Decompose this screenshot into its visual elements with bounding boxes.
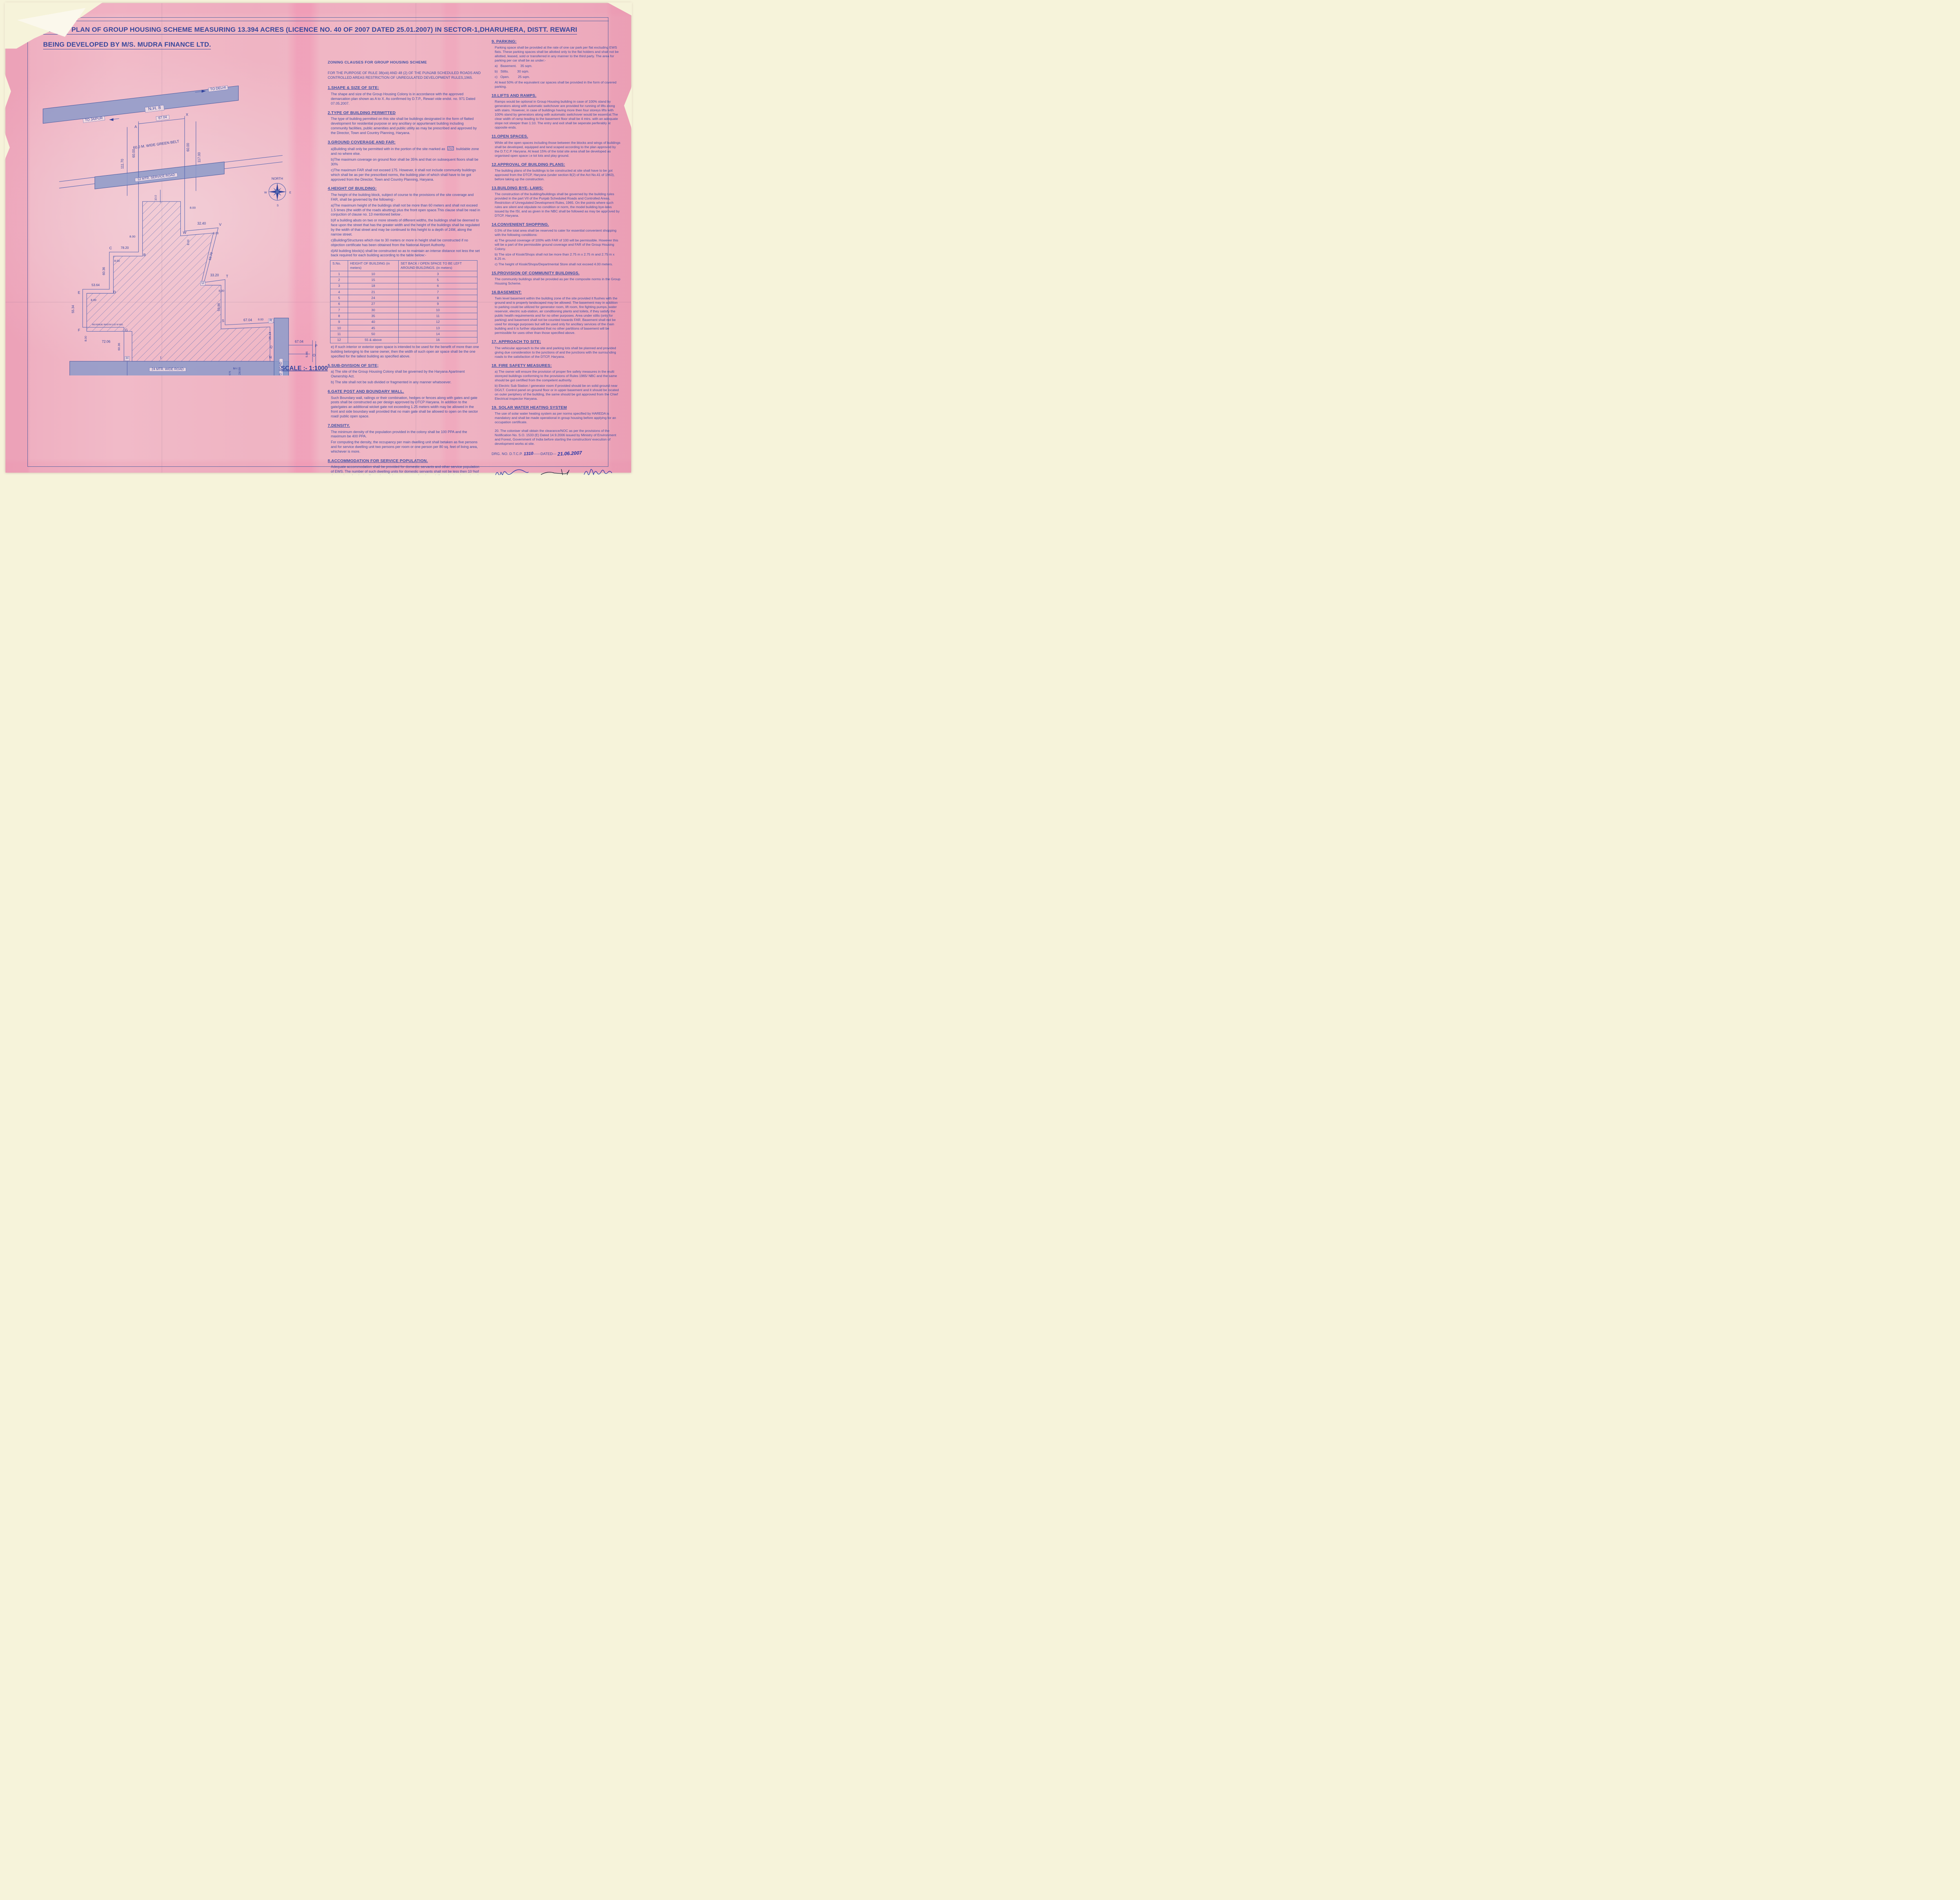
plan-label: O: [313, 353, 316, 357]
clause-text: Ramps would be optional in Group Housing…: [492, 100, 621, 130]
clause-text: a)The maximum height of the buildings sh…: [328, 203, 481, 218]
buildable-hatch-swatch: [447, 146, 454, 150]
drg-number-handwritten: 1310: [523, 451, 533, 457]
setback-table-row: 104513: [330, 325, 477, 331]
plan-label: 8.00: [213, 232, 218, 235]
setback-table-cell: 24: [348, 295, 399, 301]
plan-label: P: [315, 344, 317, 348]
clauses-sections-right: 9. PARKING:Parking space shall be provid…: [492, 39, 621, 446]
plan-label: 63.70: [208, 252, 214, 261]
site-plan-drawing: N.H. 867.04TO JAIPURTO DELHIAX60.0 M. WI…: [29, 62, 341, 375]
clause-section: 9. PARKING:Parking space shall be provid…: [492, 39, 621, 89]
setback-table-cell: 18: [348, 283, 399, 289]
setback-table-cell: 11: [399, 313, 477, 319]
clause-text: a) The ground coverage of 100% with FAR …: [492, 238, 621, 251]
plan-label: 8.00: [219, 289, 224, 292]
signature-row: (V.K. GOYAL) DTP(HQ) (DHARE SINGH) CTP(H…: [492, 467, 621, 475]
edge-nick-left: [5, 132, 10, 160]
setback-table-cell: 15: [348, 277, 399, 283]
setback-table-cell: 3: [399, 271, 477, 277]
clause-heading: 17. APPROACH TO SITE;: [492, 340, 541, 344]
drawing-title-line1: ZONING PLAN OF GROUP HOUSING SCHEME MEAS…: [43, 26, 577, 34]
signature-dhare-singh: (DHARE SINGH) CTP(HR): [539, 467, 572, 475]
drawing-title-text: ZONING PLAN OF GROUP HOUSING SCHEME MEAS…: [43, 26, 577, 34]
setback-table-cell: 7: [399, 289, 477, 295]
plan-label: F: [78, 328, 80, 332]
drg-prefix: DRG. NO. D.T.C.P.: [492, 451, 523, 456]
clause-section: 1.SHAPE & SIZE OF SITE:The shape and siz…: [328, 85, 481, 106]
scanned-zoning-plan-page: ZONING PLAN OF GROUP HOUSING SCHEME MEAS…: [0, 0, 634, 475]
plan-label: C: [109, 246, 112, 250]
clause-text: c) Open. 25 sqm.: [492, 75, 621, 79]
plan-label: 111.70: [120, 159, 124, 169]
drawing-number-line: DRG. NO. D.T.C.P. 1310------DATED--- 21.…: [492, 450, 621, 457]
plan-label: 8.00: [114, 259, 120, 263]
signature-scribble: [539, 467, 572, 475]
setback-table-cell: 35: [348, 313, 399, 319]
clause-text: The building plans of the buildings to b…: [492, 169, 621, 181]
plan-label: 8.00: [186, 239, 190, 245]
plan-label: N: [269, 355, 272, 359]
setback-table-cell: 40: [348, 319, 399, 325]
setback-table-header: S.No.: [330, 261, 348, 271]
clause-section: 17. APPROACH TO SITE;The vehicular appro…: [492, 339, 621, 359]
plan-label: E: [289, 190, 291, 194]
clause-text: The community buildings shall be provide…: [492, 277, 621, 286]
plan-label: E: [78, 290, 80, 294]
clause-text: e) If such interior or exterior open spa…: [328, 345, 481, 359]
setback-table-header: SET BACK / OPEN SPACE TO BE LEFT AROUND …: [399, 261, 477, 271]
plan-label: 60.00: [132, 149, 136, 158]
developer-title-text: BEING DEVELOPED BY M/S. MUDRA FINANCE LT…: [43, 41, 211, 49]
setback-table-cell: 50: [348, 331, 399, 337]
clause-section: 18. FIRE SAFETY MEASURES:a) The owner wi…: [492, 363, 621, 401]
setback-table-row: 2155: [330, 277, 477, 283]
setback-table-row: 94012: [330, 319, 477, 325]
plan-label: S: [277, 204, 279, 207]
corner-cut-top-right: [597, 2, 632, 16]
clause-text: a)Building shall only be permitted with …: [328, 146, 481, 156]
clause-section: 5.SUB-DIVISION OF SITE;a) The site of th…: [328, 363, 481, 385]
setback-table-row: 73010: [330, 307, 477, 313]
clause-text: The type of building permitted on this s…: [328, 117, 481, 136]
plan-label: D: [113, 290, 116, 294]
zoning-clauses-column: ZONING CLAUSES FOR GROUP HOUSING SCHEME …: [328, 60, 481, 475]
plan-label: 60.0 M. WIDE GREEN BELT: [133, 139, 180, 149]
setback-table-cell: 5: [399, 277, 477, 283]
signature-scribble: [494, 467, 530, 475]
clause-heading: 3.GROUND COVERAGE AND FAR:: [328, 140, 396, 145]
clause-section: 14.CONVENIENT SHOPPING.0.5% of the total…: [492, 222, 621, 267]
clause-heading: 7.DENSITY.: [328, 424, 350, 428]
clause-section: 6.GATE POST AND BOUNDARY WALL.Such Bound…: [328, 389, 481, 419]
setback-table-cell: 45: [348, 325, 399, 331]
plan-label: Q: [270, 345, 273, 349]
setback-table-cell: 14: [399, 331, 477, 337]
clause-text: At least 50% of the equivalent car space…: [492, 80, 621, 89]
clause-heading: 1.SHAPE & SIZE OF SITE:: [328, 86, 379, 90]
setback-table-row: 5248: [330, 295, 477, 301]
clause-section: 2.TYPE OF BUILDING PERMITTEDThe type of …: [328, 111, 481, 136]
setback-table-row: 83511: [330, 313, 477, 319]
clause-text: The shape and size of the Group Housing …: [328, 92, 481, 106]
clause-text: a) Basement. 35 sqm.: [492, 64, 621, 68]
clause-text: 20. The coloniser shall obtain the clear…: [492, 429, 621, 446]
drg-dated-label: DATED: [541, 451, 553, 456]
plan-scale-label: SCALE :- 1:1000: [281, 365, 328, 372]
clause-heading: 12.APPROVAL OF BUILDING PLANS:: [492, 163, 565, 167]
plan-label: B: [143, 253, 146, 257]
plan-label: W: [183, 231, 187, 235]
clause-text: The minimum density of the population pr…: [328, 430, 481, 439]
clause-text: The use of solar water heating system as…: [492, 412, 621, 424]
drg-date-handwritten: 21.06.2007: [557, 450, 582, 457]
clause-text: The height of the building block, subjec…: [328, 193, 481, 202]
clause-section: 11.OPEN SPACES.While all the open spaces…: [492, 134, 621, 158]
clause-heading: 13.BUILDING BYE- LAWS:: [492, 186, 543, 190]
plan-label: 60.36: [102, 267, 106, 275]
clause-heading: 10.LIFTS AND RAMPS.: [492, 94, 536, 98]
signature-scribble: [581, 467, 619, 475]
signature-dhillon: (S.S. DHILLON) D.T.C.P.(HR): [581, 467, 619, 475]
pink-drawing-sheet: ZONING PLAN OF GROUP HOUSING SCHEME MEAS…: [5, 3, 631, 473]
clause-text: c)Building/Structures which rise to 30 m…: [328, 238, 481, 248]
clause-section: 13.BUILDING BYE- LAWS:The construction o…: [492, 186, 621, 218]
setback-table-row: 4217: [330, 289, 477, 295]
setback-table-cell: 12: [330, 337, 348, 343]
clause-text: The construction of the building/buildin…: [492, 192, 621, 218]
clause-text: Parking space shall be provided at the r…: [492, 45, 621, 63]
plan-label: 55.34: [71, 305, 75, 313]
plan-label: 8.00: [190, 206, 196, 210]
setback-table-cell: 5: [330, 295, 348, 301]
plan-label: T: [226, 274, 229, 278]
clause-text: c)The maximum FAR shall not exceed 175. …: [328, 168, 481, 182]
clause-text: 0.5% of the total area shall be reserved…: [492, 228, 621, 237]
setback-table-cell: 13: [399, 325, 477, 331]
setback-table-cell: 16: [399, 337, 477, 343]
plan-label: U: [201, 281, 204, 285]
clause-text: b) The size of Kiosk/Shops shall not be …: [492, 252, 621, 261]
clause-text: Adequate accommodation shall be provided…: [328, 465, 481, 475]
clause-text: b)The maximum coverage on ground floor s…: [328, 158, 481, 167]
plan-label: 25.14: [268, 332, 272, 339]
clause-section: 3.GROUND COVERAGE AND FAR:a)Building sha…: [328, 140, 481, 182]
setback-table-cell: 4: [330, 289, 348, 295]
zoning-clauses-column-right: 9. PARKING:Parking space shall be provid…: [492, 39, 621, 475]
plan-label: 78.20: [121, 246, 129, 250]
clause-heading: 14.CONVENIENT SHOPPING.: [492, 223, 549, 227]
clauses-intro: FOR THE PURPOSE OF RULE 38(xiii) AND 48 …: [328, 71, 481, 80]
plan-label: 60.00: [186, 143, 190, 152]
clause-text: b) Stilts. 30 sqm.: [492, 69, 621, 74]
clause-section: 10.LIFTS AND RAMPS.Ramps would be option…: [492, 93, 621, 130]
setback-table-cell: 27: [348, 301, 399, 307]
setback-table-cell: 9: [330, 319, 348, 325]
clause-heading: 11.OPEN SPACES.: [492, 134, 528, 139]
clause-section: 8.ACCOMMODATION FOR SERVICE POPULATION.A…: [328, 459, 481, 475]
plan-label: V: [219, 223, 222, 227]
setback-table-cell: 55 & above: [348, 337, 399, 343]
drg-dashes: ------: [533, 451, 541, 456]
setback-table-row: 1255 & above16: [330, 337, 477, 343]
setback-table-row: 3186: [330, 283, 477, 289]
plan-label: NORTH: [272, 177, 283, 180]
plan-label: 8.00: [129, 235, 135, 238]
setback-table-cell: 21: [348, 289, 399, 295]
clause-heading: 8.ACCOMMODATION FOR SERVICE POPULATION.: [328, 459, 428, 463]
edge-nick-left: [5, 74, 11, 109]
plan-label: 5.06: [305, 352, 309, 357]
plan-label: 60.36: [117, 343, 121, 350]
plan-label: A: [134, 125, 137, 129]
plan-label: 24.00: [238, 367, 241, 375]
plan-label: I: [160, 356, 162, 360]
plan-label: 8.00: [84, 336, 87, 341]
setback-table-cell: 10: [399, 307, 477, 313]
clauses-heading: ZONING CLAUSES FOR GROUP HOUSING SCHEME: [328, 60, 481, 65]
setback-table-cell: 8: [330, 313, 348, 319]
plan-label: M-I: [233, 367, 237, 370]
clause-text: b) Electric Sub Station / generator room…: [492, 384, 621, 401]
buildable-zone-hatched: [87, 201, 270, 361]
plan-label: 10.0: [154, 195, 158, 201]
plan-label: 53.64: [92, 283, 100, 287]
north-compass: [269, 183, 286, 201]
clause-text: b)If a building abuts on two or more str…: [328, 218, 481, 237]
setback-table-row: 115014: [330, 331, 477, 337]
plan-label: 59.86: [217, 303, 221, 311]
clause-section: 15.PROVISION OF COMMUNITY BUILDINGS.The …: [492, 271, 621, 286]
setback-table-cell: 10: [348, 271, 399, 277]
setback-table-cell: 9: [399, 301, 477, 307]
drg-dashes: ---: [553, 451, 556, 456]
plan-label: G: [125, 328, 128, 332]
setback-table-row: 6279: [330, 301, 477, 307]
clause-text: While all the open spaces including thos…: [492, 141, 621, 158]
plan-label: 117.00: [197, 152, 201, 162]
clause-heading: 16.BASEMENT:: [492, 290, 522, 295]
setback-table-cell: 10: [330, 325, 348, 331]
clause-text: d)All building block(s) shall be constru…: [328, 249, 481, 258]
clause-section: 20. The coloniser shall obtain the clear…: [492, 429, 621, 446]
plan-label: H: [126, 356, 129, 360]
plan-label: 8.00: [91, 298, 96, 302]
setback-table-cell: 30: [348, 307, 399, 313]
setback-table-cell: 3: [330, 283, 348, 289]
clause-heading: 18. FIRE SAFETY MEASURES:: [492, 364, 552, 368]
clause-heading: 9. PARKING:: [492, 40, 517, 44]
clause-section: 7.DENSITY.The minimum density of the pop…: [328, 423, 481, 454]
clause-text: The vehicular approach to the site and p…: [492, 346, 621, 359]
clause-heading: 19. SOLAR WATER HEATING SYSTEM: [492, 406, 567, 410]
drawing-title-line2: BEING DEVELOPED BY M/S. MUDRA FINANCE LT…: [43, 41, 211, 49]
setback-table-cell: 8: [399, 295, 477, 301]
clause-section: 4.HEIGHT OF BUILDING:The height of the b…: [328, 186, 481, 359]
plan-label: X: [186, 112, 188, 116]
clause-heading: 6.GATE POST AND BOUNDARY WALL.: [328, 390, 404, 394]
setback-table-cell: 7: [330, 307, 348, 313]
clause-heading: 15.PROVISION OF COMMUNITY BUILDINGS.: [492, 271, 579, 276]
clause-section: 19. SOLAR WATER HEATING SYSTEMThe use of…: [492, 405, 621, 424]
plan-label: S: [222, 319, 224, 323]
setback-table-cell: 6: [399, 283, 477, 289]
plan-label: 67.04: [295, 339, 303, 343]
clause-heading: 5.SUB-DIVISION OF SITE;: [328, 364, 379, 368]
setback-table: S.No.HEIGHT OF BUILDING (in meters)SET B…: [330, 260, 477, 343]
edge-nick-right: [624, 86, 632, 129]
plan-label: 32.40: [197, 221, 206, 225]
setback-table-cell: 2: [330, 277, 348, 283]
plan-label: 8.00: [258, 318, 263, 321]
clause-text: Such Boundary wall, railings or their co…: [328, 396, 481, 419]
signature-goyal: (V.K. GOYAL) DTP(HQ): [494, 467, 530, 475]
clauses-sections: 1.SHAPE & SIZE OF SITE:The shape and siz…: [328, 85, 481, 475]
clause-text: a) The owner will ensure the provision o…: [492, 370, 621, 383]
clause-section: 16.BASEMENT:Twin level basement within t…: [492, 290, 621, 335]
setback-table-cell: 1: [330, 271, 348, 277]
setback-table-cell: 6: [330, 301, 348, 307]
clause-text: a) The site of the Group Housing Colony …: [328, 370, 481, 379]
plan-label: 1.676: [229, 371, 232, 375]
clause-heading: 2.TYPE OF BUILDING PERMITTED: [328, 111, 396, 115]
plan-label: R: [270, 319, 272, 323]
setback-table-cell: 12: [399, 319, 477, 325]
setback-table-cell: 11: [330, 331, 348, 337]
clause-text: For computing the density, the occupancy…: [328, 440, 481, 454]
setback-table-row: 1103: [330, 271, 477, 277]
plan-label: 67.04: [243, 318, 252, 322]
clause-section: 12.APPROVAL OF BUILDING PLANS:The buildi…: [492, 162, 621, 181]
clause-text: b) The site shall not be sub divided or …: [328, 380, 481, 385]
clause-text: c) The height of Kiosk/Shops/Departmenta…: [492, 262, 621, 267]
plan-label: 72.06: [102, 339, 111, 343]
setback-table-header: HEIGHT OF BUILDING (in meters): [348, 261, 399, 271]
plan-label: REVENUE RASTA 5.02 M WD.: [92, 324, 123, 326]
clause-text: Twin level basement within the building …: [492, 296, 621, 335]
frame-double-rule: [27, 21, 609, 21]
clause-heading: 4.HEIGHT OF BUILDING:: [328, 187, 377, 191]
plan-label: 24 MTR. WIDE ROAD: [152, 368, 184, 371]
plan-label: 33.20: [210, 273, 219, 277]
plan-label: W: [264, 190, 267, 194]
